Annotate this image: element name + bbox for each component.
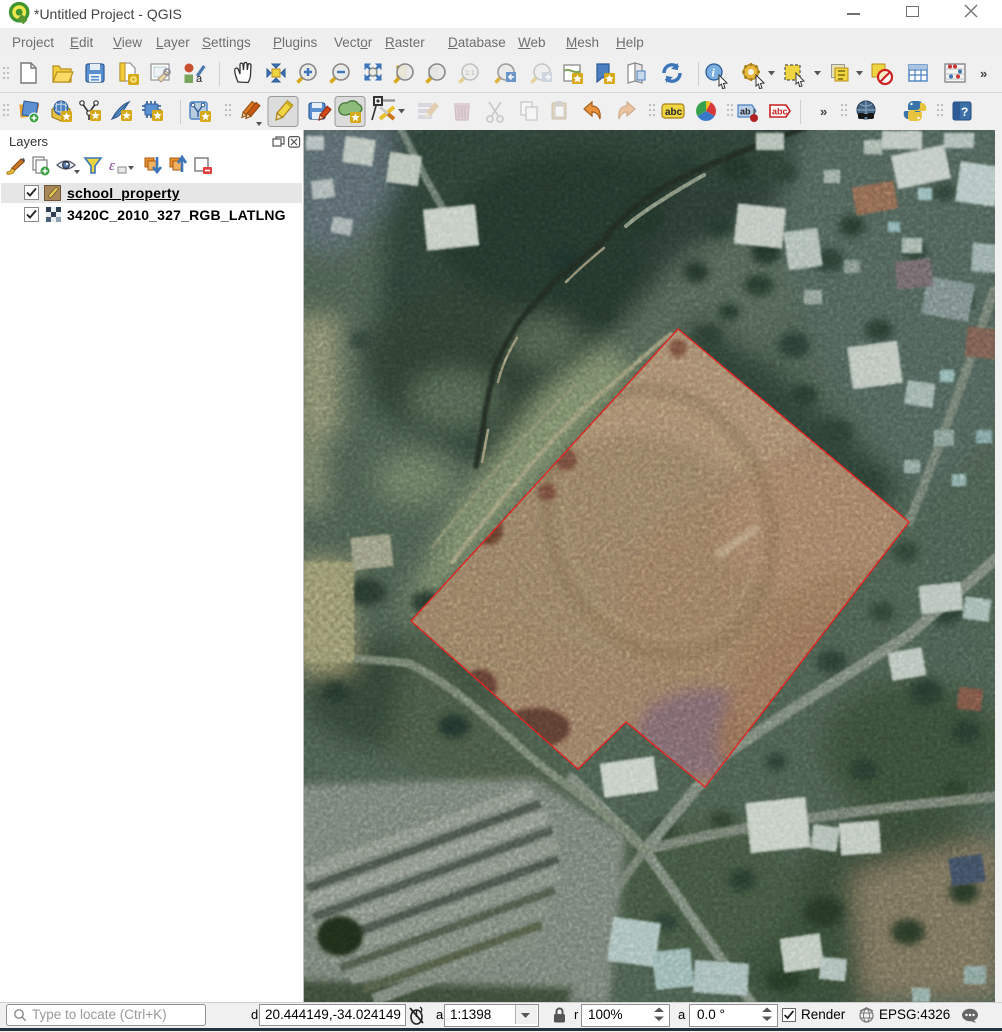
svg-text:?: ? — [961, 105, 968, 119]
svg-text:abc: abc — [665, 107, 683, 118]
svg-text:»: » — [820, 104, 827, 119]
svg-text:»: » — [980, 66, 987, 81]
svg-text:1:1: 1:1 — [465, 70, 475, 77]
svg-text:ab: ab — [740, 107, 751, 117]
svg-text:a: a — [196, 73, 203, 85]
svg-text:abc: abc — [772, 107, 788, 117]
svg-text:ε: ε — [109, 158, 115, 174]
